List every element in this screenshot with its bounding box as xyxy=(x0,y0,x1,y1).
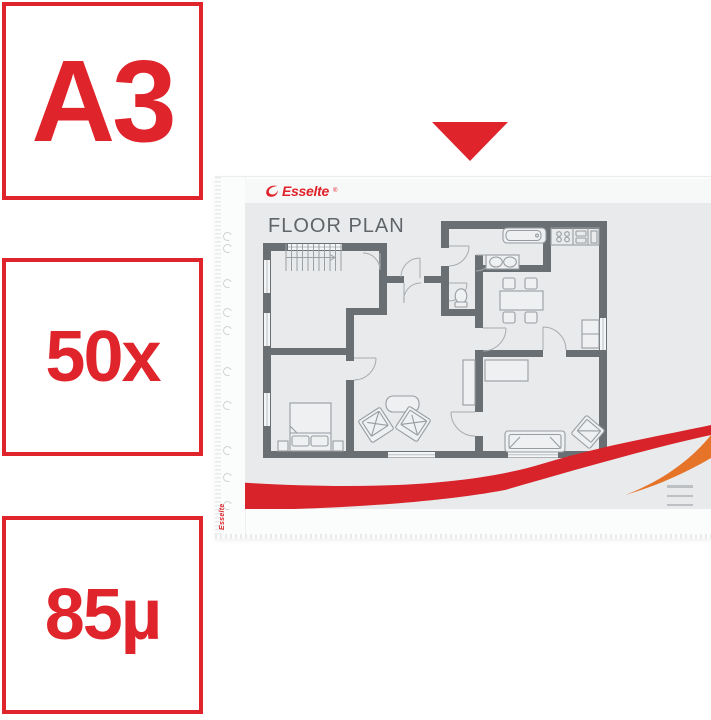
punch-hole xyxy=(222,278,234,290)
punch-hole xyxy=(222,307,234,319)
punch-strip xyxy=(215,177,246,539)
swoosh-graphic xyxy=(245,179,711,509)
punch-hole xyxy=(222,400,234,412)
bottom-weld-edge xyxy=(215,534,711,539)
quantity-badge: 50x xyxy=(2,258,203,456)
punch-hole xyxy=(222,231,234,243)
product-card: A3 50x 85µ Esselte xyxy=(0,0,711,720)
red-swoosh xyxy=(245,425,711,509)
format-badge: A3 xyxy=(2,2,203,200)
fine-print-line xyxy=(667,495,693,498)
punch-hole xyxy=(222,366,234,378)
thickness-badge-label: 85µ xyxy=(45,579,161,651)
inserted-document: Esselte ® FLOOR PLAN xyxy=(245,179,711,509)
weld-edge xyxy=(215,177,221,539)
fine-print-line xyxy=(667,485,693,488)
arrow-down-icon xyxy=(432,122,508,161)
punch-hole xyxy=(222,243,234,255)
punch-hole xyxy=(222,325,234,337)
format-badge-label: A3 xyxy=(31,43,173,159)
sheet-protector: Esselte Esselte ® FLOOR PLAN xyxy=(215,176,711,539)
punch-hole xyxy=(222,445,234,457)
side-brand-text: Esselte xyxy=(219,503,226,530)
punch-hole xyxy=(222,472,234,484)
quantity-badge-label: 50x xyxy=(45,321,159,393)
thickness-badge: 85µ xyxy=(2,516,203,714)
fine-print-line xyxy=(667,504,693,507)
